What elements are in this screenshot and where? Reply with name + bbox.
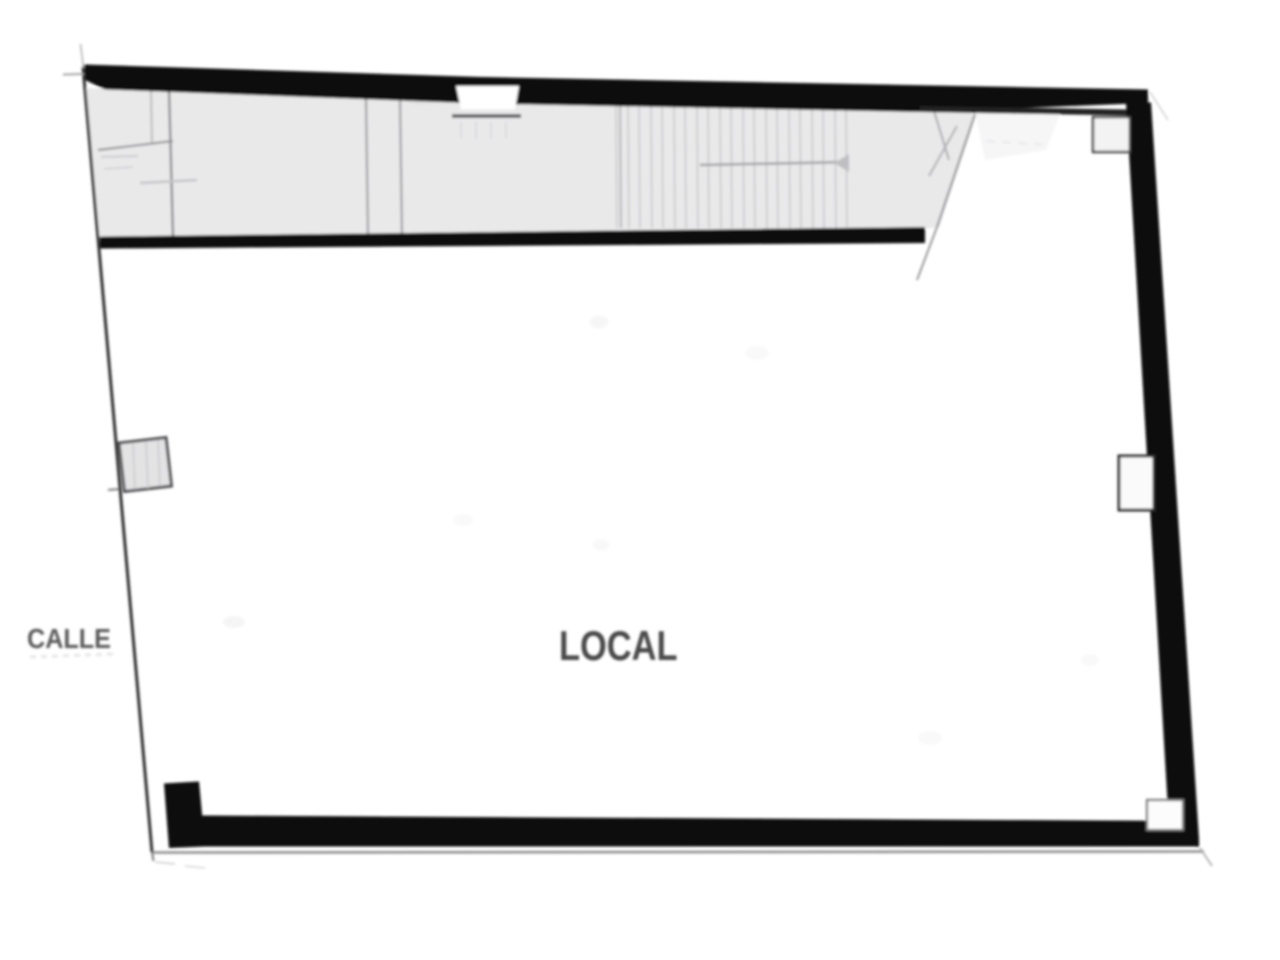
svg-text:LOCAL: LOCAL — [559, 623, 678, 670]
svg-text:CALLE: CALLE — [27, 623, 111, 655]
